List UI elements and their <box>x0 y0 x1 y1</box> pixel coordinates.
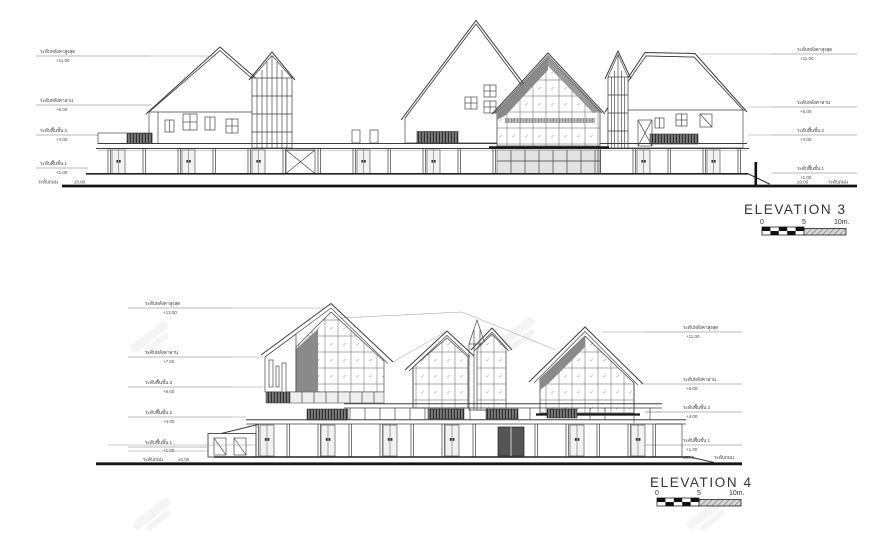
level-label: ระดับหลังคาสูงสุด +11.00 <box>700 47 857 61</box>
svg-text:ระดับหลังคาลาน: ระดับหลังคาลาน <box>40 98 74 104</box>
svg-text:+1.00: +1.00 <box>686 447 698 452</box>
level-label: ระดับพื้นชั้น 2 +4.00 <box>128 407 246 424</box>
dark-entrance-door <box>498 427 524 456</box>
cross-brace-panel <box>286 150 315 174</box>
svg-text:ระดับพื้นชั้น 2: ระดับพื้นชั้น 2 <box>797 125 824 134</box>
level-label: ระดับหลังคาสูงสุด +11.00 <box>602 325 742 339</box>
svg-text:+4.00: +4.00 <box>686 414 698 419</box>
svg-text:+4.00: +4.00 <box>800 137 812 142</box>
elevation4-drawing: ระดับหลังคาสูงสุด +13.00 ระดับหลังคาลาน … <box>96 301 753 506</box>
svg-text:0: 0 <box>655 490 659 497</box>
level-label: ±0.00 ระดับถนน <box>683 455 735 461</box>
flag-post <box>755 162 758 185</box>
svg-text:+4.00: +4.00 <box>56 137 68 142</box>
svg-text:ระดับหลังคาลาน: ระดับหลังคาลาน <box>797 100 831 106</box>
svg-text:ระดับพื้นชั้น 1: ระดับพื้นชั้น 1 <box>40 158 67 167</box>
level-label: ระดับพื้นชั้น 2 +4.00 <box>645 402 742 419</box>
level-label: ระดับหลังคาลาน +6.00 <box>36 98 152 112</box>
level-label: ระดับหลังคาสูงสุด +13.00 <box>128 301 326 315</box>
svg-text:ระดับพื้นชั้น 2: ระดับพื้นชั้น 2 <box>40 125 67 134</box>
svg-text:+6.00: +6.00 <box>56 107 68 112</box>
level-label: ระดับหลังคาสูงสุด +11.00 <box>36 49 216 63</box>
elev4-left-wing <box>208 425 258 458</box>
svg-text:+4.00: +4.00 <box>163 419 175 424</box>
svg-text:ระดับพื้นชั้น 3: ระดับพื้นชั้น 3 <box>145 377 172 386</box>
svg-text:+6.00: +6.00 <box>686 386 698 391</box>
elevation3-drawing: ระดับหลังคาสูงสุด +11.00 ระดับหลังคาลาน … <box>36 21 857 236</box>
svg-text:±0.00: ±0.00 <box>74 180 86 185</box>
svg-text:+7.50: +7.50 <box>163 359 175 364</box>
svg-text:ระดับพื้นชั้น 2: ระดับพื้นชั้น 2 <box>683 402 710 411</box>
svg-text:ระดับหลังคาลาน: ระดับหลังคาลาน <box>145 350 179 356</box>
svg-text:±0.00: ±0.00 <box>178 457 190 462</box>
svg-text:ระดับถนน: ระดับถนน <box>714 455 735 461</box>
elev4-left-gable-house <box>261 304 393 404</box>
elev3-glass-gable <box>489 53 609 174</box>
elevation4-title: ELEVATION 4 <box>650 475 753 490</box>
svg-text:+13.00: +13.00 <box>163 310 177 315</box>
svg-text:0: 0 <box>760 219 764 226</box>
svg-text:5: 5 <box>697 490 701 497</box>
elev4-colonnade <box>256 424 682 457</box>
svg-text:ระดับพื้นชั้น 1: ระดับพื้นชั้น 1 <box>145 437 172 446</box>
svg-text:ระดับหลังคาสูงสุด: ระดับหลังคาสูงสุด <box>683 325 718 331</box>
svg-text:5: 5 <box>802 219 806 226</box>
svg-text:+1.00: +1.00 <box>56 170 68 175</box>
svg-text:ระดับพื้นชั้น 1: ระดับพื้นชั้น 1 <box>797 163 824 172</box>
svg-text:+11.00: +11.00 <box>56 58 70 63</box>
glass-gable-lower-bay <box>497 150 600 174</box>
svg-text:10m.: 10m. <box>834 219 850 226</box>
elev3-colonnade <box>108 148 741 174</box>
level-label: ระดับหลังคาลาน +6.00 <box>640 377 742 391</box>
level-label: ระดับหลังคาลาน +7.50 <box>128 350 263 364</box>
svg-text:ระดับหลังคาสูงสุด: ระดับหลังคาสูงสุด <box>797 47 832 53</box>
svg-text:ระดับหลังคาสูงสุด: ระดับหลังคาสูงสุด <box>145 301 180 307</box>
elev4-gable-a <box>405 331 474 408</box>
level-label: ระดับถนน ±0.00 <box>143 457 190 463</box>
svg-text:+6.00: +6.00 <box>163 389 175 394</box>
elevation3-title: ELEVATION 3 <box>744 202 847 217</box>
svg-text:10m.: 10m. <box>729 490 745 497</box>
drawing-sheet: ระดับหลังคาสูงสุด +11.00 ระดับหลังคาลาน … <box>0 0 880 538</box>
elev4-right-end-wall <box>656 424 682 457</box>
level-label: ระดับพื้นชั้น 1 +1.00 <box>772 163 857 180</box>
elevation-drawing-canvas: ระดับหลังคาสูงสุด +11.00 ระดับหลังคาลาน … <box>0 0 880 538</box>
svg-text:ระดับพื้นชั้น 1: ระดับพื้นชั้น 1 <box>683 435 710 444</box>
svg-text:ระดับพื้นชั้น 2: ระดับพื้นชั้น 2 <box>145 407 172 416</box>
level-label: ระดับพื้นชั้น 1 +1.00 <box>645 435 742 452</box>
svg-text:ระดับหลังคาลาน: ระดับหลังคาลาน <box>683 377 717 383</box>
svg-text:ระดับถนน: ระดับถนน <box>38 180 59 186</box>
svg-text:±0.00: ±0.00 <box>797 180 809 185</box>
level-label: ระดับพื้นชั้น 2 +4.00 <box>36 125 98 142</box>
elev3-level-labels-right: ระดับหลังคาสูงสุด +11.00 ระดับหลังคาลาน … <box>700 47 857 186</box>
svg-text:+11.00: +11.00 <box>800 56 814 61</box>
elev3-left-tower <box>249 52 295 148</box>
level-label: ระดับพื้นชั้น 2 +4.00 <box>748 125 857 142</box>
svg-text:+1.00: +1.00 <box>163 448 175 453</box>
svg-text:ระดับหลังคาสูงสุด: ระดับหลังคาสูงสุด <box>40 49 75 55</box>
svg-text:ระดับถนน: ระดับถนน <box>143 457 164 463</box>
elev4-gable-c <box>529 327 643 423</box>
level-label: ระดับพื้นชั้น 1 +1.00 <box>36 158 88 175</box>
elev3-right-tower <box>605 51 631 148</box>
level-label: ระดับหลังคาลาน +6.00 <box>748 100 857 114</box>
level-label: ระดับพื้นชั้น 3 +6.00 <box>128 377 263 394</box>
svg-text:+6.00: +6.00 <box>800 109 812 114</box>
elevation4-scale-bar: 0 5 10m. <box>655 490 745 506</box>
elevation3-scale-bar: 0 5 10m. <box>760 219 850 235</box>
svg-text:+11.00: +11.00 <box>686 334 700 339</box>
